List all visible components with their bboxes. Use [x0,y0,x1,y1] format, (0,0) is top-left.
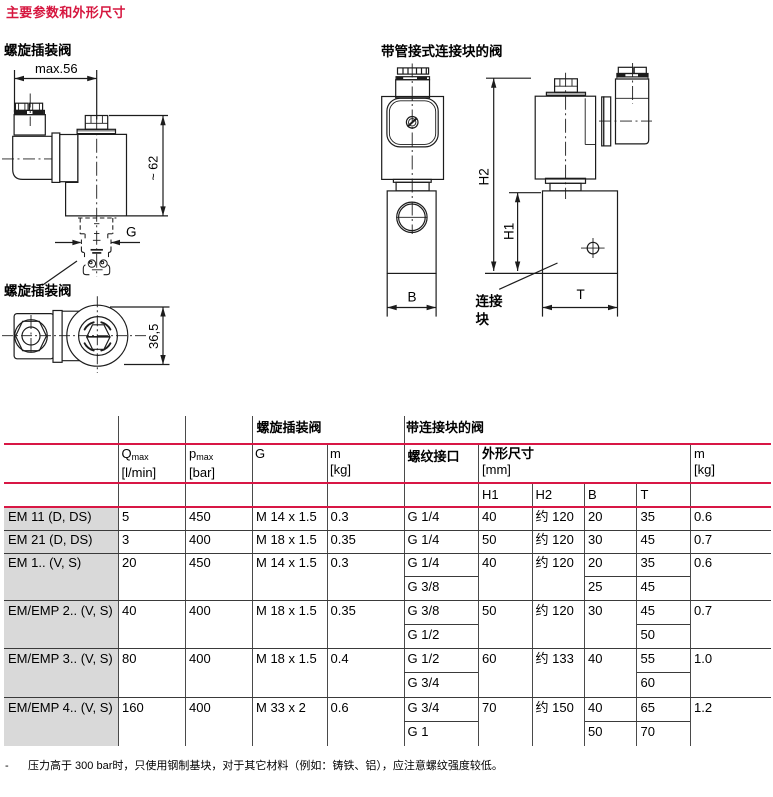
svg-text:H2: H2 [477,168,492,185]
svg-text:T: T [577,287,585,302]
svg-text:G: G [126,225,137,240]
svg-text:块: 块 [476,312,490,327]
svg-text:螺旋插装阀: 螺旋插装阀 [4,283,72,299]
svg-text:~ 62: ~ 62 [147,156,161,181]
svg-text:36,5: 36,5 [146,324,161,349]
svg-text:B: B [408,290,417,305]
svg-text:连接: 连接 [476,293,503,309]
svg-text:螺旋插装阀: 螺旋插装阀 [4,42,72,58]
svg-text:H1: H1 [502,223,517,240]
svg-text:带管接式连接块的阀: 带管接式连接块的阀 [381,43,503,59]
svg-text:max.56: max.56 [35,61,78,76]
